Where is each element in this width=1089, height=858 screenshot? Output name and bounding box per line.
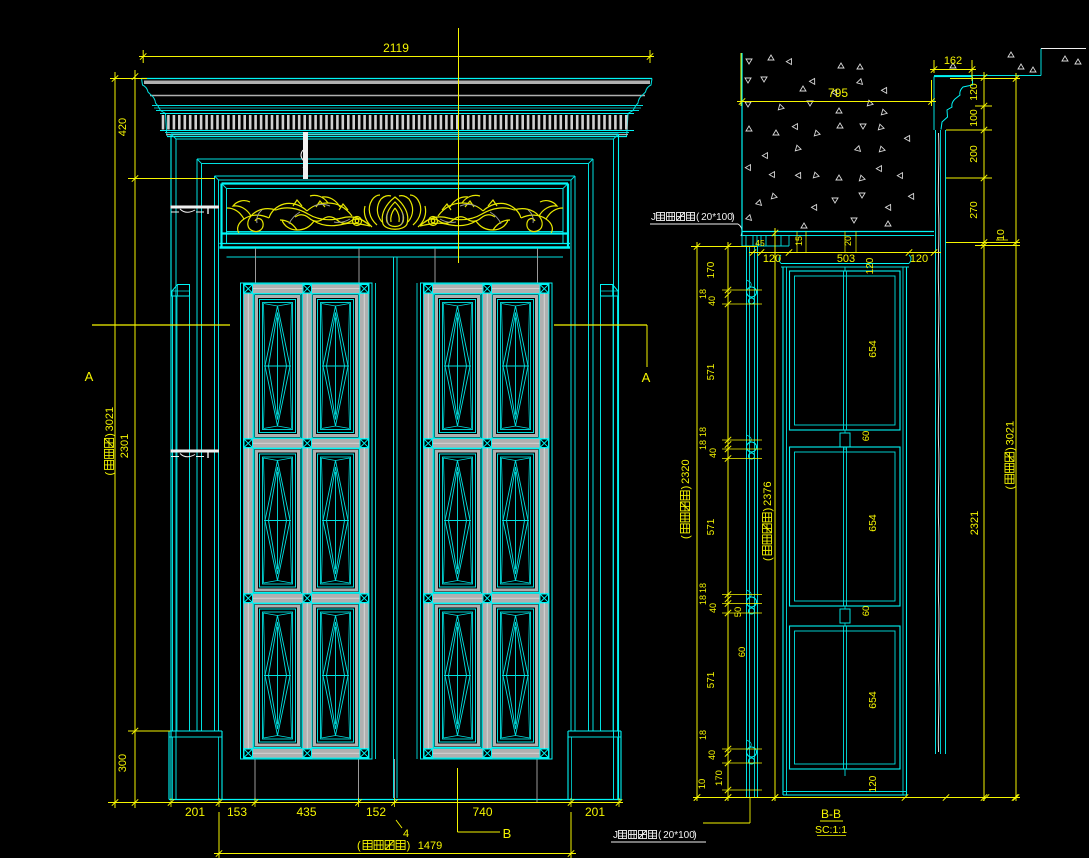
- svg-text:201: 201: [185, 805, 205, 819]
- svg-text:40: 40: [707, 296, 717, 306]
- svg-text:): ): [680, 486, 692, 490]
- svg-text:654: 654: [867, 514, 879, 532]
- svg-text:): ): [693, 830, 696, 841]
- svg-text:200: 200: [968, 145, 980, 163]
- svg-text:A: A: [85, 369, 94, 384]
- svg-text:50: 50: [733, 607, 744, 618]
- svg-text:J: J: [613, 830, 618, 841]
- svg-text:170: 170: [706, 261, 717, 278]
- svg-text:40: 40: [708, 448, 718, 458]
- svg-text:120: 120: [865, 257, 876, 274]
- svg-text:18: 18: [698, 440, 708, 450]
- svg-text:B: B: [503, 826, 512, 841]
- svg-text:120: 120: [763, 253, 781, 265]
- svg-text:(: (: [762, 557, 774, 561]
- svg-text:435: 435: [296, 805, 316, 819]
- svg-text:3021: 3021: [1005, 421, 1017, 445]
- svg-text:2301: 2301: [119, 434, 131, 458]
- svg-text:4: 4: [403, 828, 409, 840]
- svg-text:120: 120: [910, 253, 928, 265]
- svg-text:1479: 1479: [418, 840, 442, 852]
- svg-text:2321: 2321: [969, 511, 981, 535]
- svg-text:J: J: [651, 212, 656, 223]
- svg-text:): ): [1005, 447, 1017, 451]
- svg-text:18: 18: [698, 583, 708, 593]
- svg-text:740: 740: [472, 805, 492, 819]
- svg-text:(: (: [357, 840, 361, 852]
- svg-text:654: 654: [867, 691, 879, 709]
- svg-text:654: 654: [867, 340, 879, 358]
- svg-text:10: 10: [995, 229, 1007, 241]
- svg-text:162: 162: [944, 55, 962, 67]
- svg-text:571: 571: [706, 518, 717, 535]
- svg-text:A: A: [642, 370, 651, 385]
- svg-text:20*100: 20*100: [701, 212, 733, 223]
- svg-text:795: 795: [828, 86, 848, 100]
- svg-text:571: 571: [706, 671, 717, 688]
- svg-text:40: 40: [707, 750, 717, 760]
- svg-text:): ): [762, 508, 774, 512]
- svg-text:120: 120: [868, 775, 879, 792]
- svg-text:153: 153: [227, 805, 247, 819]
- svg-text:SC:1:1: SC:1:1: [815, 824, 847, 836]
- svg-text:100: 100: [968, 109, 980, 127]
- svg-text:60: 60: [861, 431, 872, 442]
- svg-text:503: 503: [837, 253, 855, 265]
- svg-text:45: 45: [755, 238, 765, 248]
- svg-text:60: 60: [861, 606, 872, 617]
- svg-text:18: 18: [698, 595, 708, 605]
- svg-text:201: 201: [585, 805, 605, 819]
- svg-text:571: 571: [706, 363, 717, 380]
- svg-text:18: 18: [698, 427, 708, 437]
- svg-text:B-B: B-B: [821, 807, 841, 821]
- svg-text:300: 300: [117, 754, 129, 772]
- svg-text:18: 18: [698, 730, 708, 740]
- svg-text:120: 120: [968, 83, 980, 101]
- svg-text:3021: 3021: [104, 407, 116, 431]
- svg-text:170: 170: [714, 770, 725, 786]
- svg-text:2320: 2320: [680, 459, 692, 483]
- svg-text:(: (: [680, 535, 692, 539]
- svg-text:2376: 2376: [762, 481, 774, 505]
- svg-text:(: (: [1005, 486, 1017, 490]
- svg-text:420: 420: [117, 118, 129, 136]
- svg-text:40: 40: [708, 603, 718, 613]
- svg-text:20*100: 20*100: [663, 830, 695, 841]
- svg-text:2119: 2119: [383, 41, 409, 55]
- svg-text:(: (: [104, 472, 116, 476]
- svg-text:10: 10: [697, 779, 708, 790]
- svg-text:152: 152: [366, 805, 386, 819]
- svg-text:): ): [407, 840, 411, 852]
- svg-text:15: 15: [794, 236, 804, 246]
- svg-text:): ): [104, 433, 116, 437]
- svg-text:): ): [731, 212, 734, 223]
- svg-text:60: 60: [737, 647, 748, 658]
- svg-text:270: 270: [968, 201, 980, 219]
- svg-text:20: 20: [843, 236, 853, 246]
